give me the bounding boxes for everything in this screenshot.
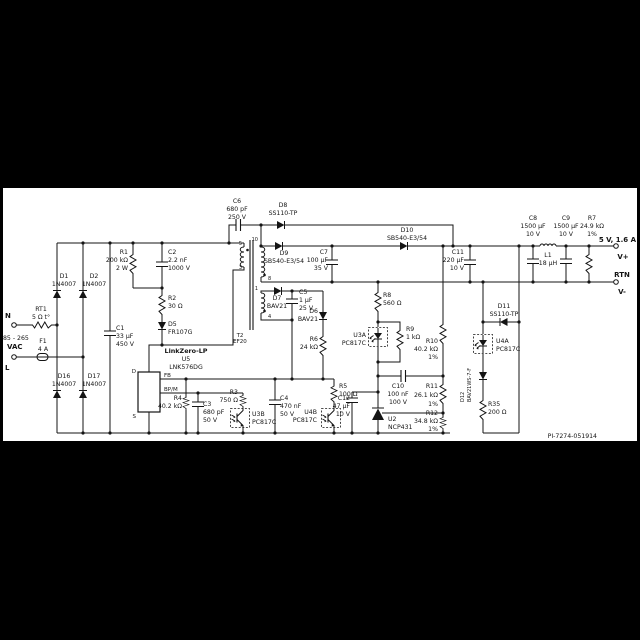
output-rating: 5 V, 1.6 A [599,236,637,244]
svg-text:1%: 1% [428,401,438,408]
svg-text:R9: R9 [406,326,414,333]
svg-text:750 Ω: 750 Ω [219,397,238,404]
svg-text:C6: C6 [233,198,241,205]
l-terminal-label: L [5,364,10,372]
svg-text:1 µF: 1 µF [299,297,313,304]
svg-text:680 pF: 680 pF [203,409,225,416]
svg-text:D16: D16 [58,373,71,380]
svg-text:R1: R1 [120,249,128,256]
svg-text:U2: U2 [388,416,397,423]
svg-text:1: 1 [255,286,258,292]
screenshot-canvas: N L 85 - 265 VAC RT15 Ω t° F14 A D11N400… [0,0,640,640]
svg-text:EF20: EF20 [233,339,247,345]
svg-text:10 V: 10 V [559,231,574,238]
svg-text:34.8 kΩ: 34.8 kΩ [414,418,438,425]
document-id: PI-7274-051914 [548,433,597,440]
svg-text:FB: FB [164,373,171,379]
svg-text:R12: R12 [426,410,438,417]
svg-text:100 V: 100 V [389,399,408,406]
svg-text:U5: U5 [182,356,191,363]
svg-text:1500 µF: 1500 µF [520,223,546,230]
svg-text:40.2 kΩ: 40.2 kΩ [414,346,438,353]
svg-text:C8: C8 [529,215,537,222]
svg-text:PC817C: PC817C [252,419,276,426]
schematic: N L 85 - 265 VAC RT15 Ω t° F14 A D11N400… [0,0,640,640]
svg-text:2.2 nF: 2.2 nF [168,257,188,264]
svg-text:10: 10 [252,237,258,243]
svg-text:1%: 1% [587,231,597,238]
svg-text:S: S [133,414,137,420]
n-terminal-label: N [5,312,11,320]
svg-text:SB540-E3/54: SB540-E3/54 [264,258,304,265]
svg-text:C2: C2 [168,249,176,256]
svg-text:18 µH: 18 µH [539,260,558,267]
svg-text:1N4007: 1N4007 [82,381,106,388]
vminus-label: V- [618,288,626,296]
svg-text:C9: C9 [562,215,570,222]
svg-text:PC817C: PC817C [293,417,317,424]
svg-text:D: D [132,369,136,375]
svg-text:R3: R3 [230,389,238,396]
svg-text:10 V: 10 V [526,231,541,238]
vac-range: 85 - 265 [3,335,29,342]
svg-text:F1: F1 [39,338,47,345]
ic-u5 [138,372,160,412]
svg-text:BAV21: BAV21 [298,316,318,323]
svg-text:C1: C1 [116,325,124,332]
svg-text:U3A: U3A [353,332,366,339]
svg-text:47 µF: 47 µF [333,403,351,410]
svg-text:1N4007: 1N4007 [82,281,106,288]
svg-text:220 µF: 220 µF [443,257,465,264]
svg-text:LNK576DG: LNK576DG [169,364,203,371]
rtn-label: RTN [614,271,630,279]
svg-text:R11: R11 [426,383,438,390]
svg-text:100 nF: 100 nF [387,391,409,398]
svg-text:5: 5 [239,241,242,247]
svg-text:D1: D1 [60,273,69,280]
svg-text:1N4007: 1N4007 [52,281,76,288]
svg-text:8: 8 [268,276,271,282]
svg-text:D2: D2 [90,273,99,280]
svg-text:D12: D12 [460,392,466,402]
svg-text:R4: R4 [174,395,182,402]
svg-text:1 kΩ: 1 kΩ [406,334,420,341]
svg-text:R10: R10 [426,338,438,345]
letterbox-bottom [0,441,640,640]
phase-dot-secondary [263,274,266,277]
svg-text:LinkZero-LP: LinkZero-LP [165,347,208,355]
svg-text:24 kΩ: 24 kΩ [300,344,318,351]
svg-text:C5: C5 [299,289,307,296]
svg-text:1N4007: 1N4007 [52,381,76,388]
svg-text:1%: 1% [428,426,438,433]
svg-text:26.1 kΩ: 26.1 kΩ [414,392,438,399]
svg-text:200 Ω: 200 Ω [488,409,507,416]
svg-text:D6: D6 [309,308,318,315]
svg-text:C4: C4 [280,395,288,402]
svg-text:40.2 kΩ: 40.2 kΩ [158,403,182,410]
svg-text:L1: L1 [544,252,551,259]
svg-text:250 V: 250 V [228,214,247,221]
svg-text:50 V: 50 V [203,417,218,424]
svg-text:R35: R35 [488,401,500,408]
svg-text:PC817C: PC817C [342,340,366,347]
svg-text:D11: D11 [498,303,511,310]
svg-text:U3B: U3B [252,411,265,418]
svg-text:R5: R5 [339,383,347,390]
svg-text:R7: R7 [588,215,596,222]
svg-text:SB540-E3/54: SB540-E3/54 [387,235,427,242]
svg-text:560 Ω: 560 Ω [383,300,402,307]
svg-text:3: 3 [239,265,242,271]
svg-text:C7: C7 [320,249,328,256]
svg-text:U4A: U4A [496,338,509,345]
svg-text:35 V: 35 V [314,265,329,272]
svg-text:470 nF: 470 nF [280,403,302,410]
svg-text:C10: C10 [392,383,404,390]
phase-dot-primary [246,249,249,252]
svg-text:D9: D9 [280,250,289,257]
vplus-label: V+ [617,253,628,261]
svg-text:C12: C12 [338,395,350,402]
svg-text:PC817C: PC817C [496,346,520,353]
svg-text:680 pF: 680 pF [226,206,248,213]
svg-text:SS110-TP: SS110-TP [269,210,298,217]
svg-text:R2: R2 [168,295,176,302]
svg-text:SS110-TP: SS110-TP [490,311,519,318]
svg-text:4 A: 4 A [38,346,49,353]
letterbox-top [0,0,640,188]
svg-text:100 µF: 100 µF [307,257,329,264]
svg-text:BAV21WS-7-F: BAV21WS-7-F [467,368,473,402]
svg-text:BAV21: BAV21 [267,303,287,310]
svg-text:C3: C3 [203,401,211,408]
svg-text:4: 4 [268,314,271,320]
svg-text:5 Ω t°: 5 Ω t° [32,313,50,321]
svg-text:NCP431: NCP431 [388,424,413,431]
svg-text:D7: D7 [273,295,282,302]
svg-text:R8: R8 [383,292,391,299]
vac-unit: VAC [7,343,23,351]
svg-text:D17: D17 [88,373,101,380]
svg-text:RT1: RT1 [35,306,47,313]
svg-text:FR107G: FR107G [168,329,193,336]
svg-text:1%: 1% [428,354,438,361]
svg-text:D8: D8 [279,202,288,209]
svg-text:U4B: U4B [304,409,317,416]
svg-text:D5: D5 [168,321,177,328]
phase-dot-bias [263,310,266,313]
svg-text:10 V: 10 V [336,411,351,418]
svg-text:BP/M: BP/M [164,387,178,393]
svg-text:33 µF: 33 µF [116,333,134,340]
svg-text:200 kΩ: 200 kΩ [106,257,128,264]
svg-text:2 W: 2 W [116,265,128,272]
svg-text:450 V: 450 V [116,341,135,348]
svg-text:1500 µF: 1500 µF [553,223,579,230]
svg-text:30 Ω: 30 Ω [168,303,183,310]
svg-text:1000 V: 1000 V [168,265,191,272]
svg-text:24.9 kΩ: 24.9 kΩ [580,223,604,230]
svg-text:R6: R6 [310,336,318,343]
svg-text:C11: C11 [452,249,464,256]
svg-text:D10: D10 [401,227,414,234]
svg-text:10 V: 10 V [450,265,465,272]
